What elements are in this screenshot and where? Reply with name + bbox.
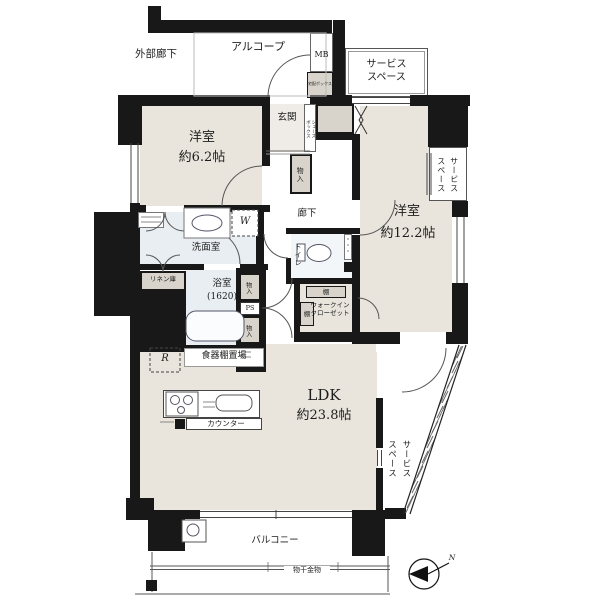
alcove-label: アルコープ — [220, 40, 296, 54]
room2-size-label: 約12.2帖 — [374, 226, 442, 243]
wall-toilet-west-b — [286, 258, 291, 280]
balcony-block-right — [352, 518, 385, 556]
dish-shelf-label: 食器棚置場 — [184, 351, 264, 363]
micro-box-washroom — [138, 212, 164, 228]
micro-black-box-kitchen — [175, 419, 185, 429]
wall-genkan-west — [262, 100, 270, 166]
shoes-box-label: シューズ ボックス — [305, 108, 316, 150]
wall-ldk-east-a — [376, 398, 383, 448]
wall-r2-bottom-c — [446, 332, 468, 344]
wall-west-block — [94, 212, 132, 316]
wall-r1-closet-a — [140, 205, 146, 212]
wall-closet12-bottom — [316, 134, 360, 140]
site-corner-block — [146, 580, 157, 591]
service-space-bottom-label: サービス スペース — [384, 428, 413, 490]
wall-wash-east — [256, 206, 264, 268]
wall-mb-right — [333, 20, 345, 100]
wall-hall-east-b — [352, 235, 360, 335]
micro-black-box-toilet — [344, 262, 354, 272]
ldk-floor — [140, 352, 377, 510]
ps-label: PS — [240, 304, 260, 312]
wall-ldk-east-b — [376, 468, 383, 514]
wall-bath-top-a — [140, 264, 204, 270]
wic-label: ウォークイン クローゼット — [302, 301, 358, 318]
hallway-label: 廊下 — [290, 208, 324, 220]
service-space-right-label: サービス スペース — [434, 150, 460, 200]
ldk-size-label: 約23.8帖 — [284, 408, 364, 425]
toilet-label: トイレ — [293, 238, 302, 272]
bath-size-label: (1620) — [198, 292, 246, 304]
room12-closet-box — [316, 104, 354, 134]
compass-n-label: N — [446, 553, 458, 563]
wall-hall-east-a — [352, 136, 360, 200]
balcony-label: バルコニー — [238, 535, 312, 547]
storage-b-label: 物入 — [244, 320, 252, 341]
fridge-mark: R — [158, 352, 172, 365]
wall-north-a — [130, 95, 270, 106]
wall-top-bar — [148, 20, 332, 33]
washroom-label: 洗面室 — [182, 242, 230, 254]
micro-strip-toilet — [344, 234, 352, 260]
compass-icon — [409, 559, 449, 589]
wall-corner-ne — [428, 98, 468, 147]
exterior-corridor-label: 外部廊下 — [122, 48, 190, 62]
storage-a-label: 物入 — [244, 277, 252, 298]
balcony-block-left — [148, 518, 185, 551]
wall-toilet-west-a — [286, 228, 291, 234]
hall-strip-floor — [264, 232, 288, 344]
wall-east-a — [452, 201, 468, 217]
hall-storage-label: 物入 — [295, 160, 304, 190]
mb-label: MB — [310, 50, 333, 60]
laundry-fitting-label: 物干金物 — [284, 566, 330, 575]
room2-name-label: 洋室 — [384, 204, 430, 221]
room1-name-label: 洋室 — [180, 130, 224, 147]
delivery-box-label: 宅配ボックス — [306, 81, 334, 86]
genkan-label: 玄関 — [270, 112, 304, 124]
service-space-top-label: サービス スペース — [350, 58, 423, 84]
wall-corner-se — [385, 508, 406, 519]
washer-mark: W — [238, 215, 252, 228]
room1-size-label: 約6.2帖 — [172, 150, 232, 167]
wall-linen-block — [140, 291, 186, 352]
counter-label: カウンター — [198, 419, 254, 429]
ldk-floor2 — [262, 344, 376, 354]
bath-name-label: 浴室 — [200, 278, 244, 290]
shelf-top-label: 棚 — [306, 288, 346, 296]
linen-label: リネン庫 — [141, 275, 185, 283]
ldk-name-label: LDK — [292, 386, 356, 406]
kitchen-unit — [163, 390, 260, 418]
floor-plan: 外部廊下 アルコープ MB 宅配ボックス サービス スペース サービス スペース… — [0, 0, 600, 600]
wall-r2-bottom-b — [352, 332, 400, 344]
